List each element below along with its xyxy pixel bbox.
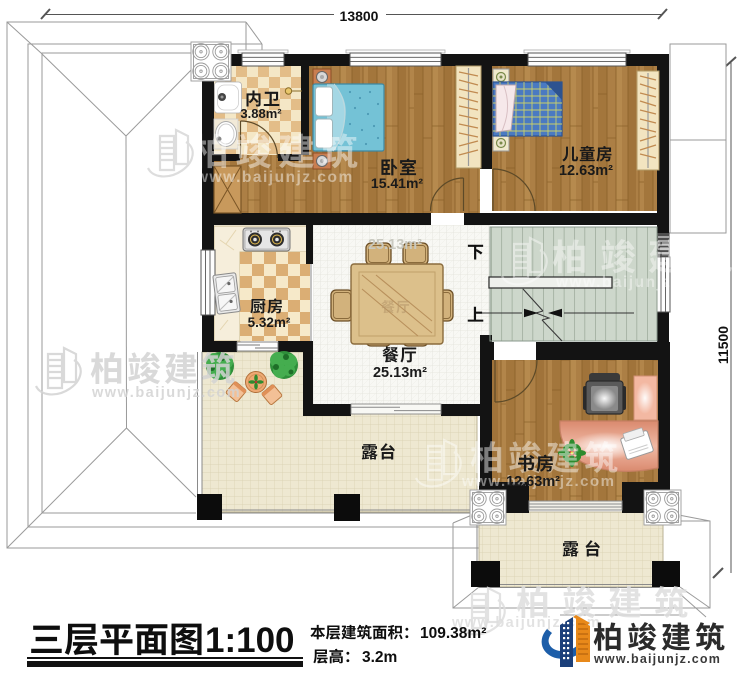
svg-text:www.baijunjz.com: www.baijunjz.com bbox=[195, 169, 354, 186]
svg-text:13800: 13800 bbox=[340, 8, 379, 24]
svg-text:15.41m²: 15.41m² bbox=[371, 175, 423, 191]
svg-text:1:100: 1:100 bbox=[205, 621, 295, 660]
svg-text:12.63m²: 12.63m² bbox=[506, 474, 560, 490]
svg-text:www.baijunjz.com: www.baijunjz.com bbox=[593, 652, 721, 666]
svg-text:3.88m²: 3.88m² bbox=[240, 106, 282, 121]
svg-text:25.13m²: 25.13m² bbox=[368, 237, 422, 253]
svg-text:www.baijunjz.com: www.baijunjz.com bbox=[91, 385, 241, 401]
svg-text:25.13m²: 25.13m² bbox=[373, 365, 427, 381]
svg-text:12.63m²: 12.63m² bbox=[559, 163, 613, 179]
svg-text:5.32m²: 5.32m² bbox=[248, 315, 291, 330]
svg-text:109.38m²: 109.38m² bbox=[420, 625, 486, 642]
svg-text:11500: 11500 bbox=[715, 326, 731, 364]
svg-text:www.baijunjz.com: www.baijunjz.com bbox=[555, 274, 714, 291]
svg-text:3.2m: 3.2m bbox=[362, 649, 397, 666]
